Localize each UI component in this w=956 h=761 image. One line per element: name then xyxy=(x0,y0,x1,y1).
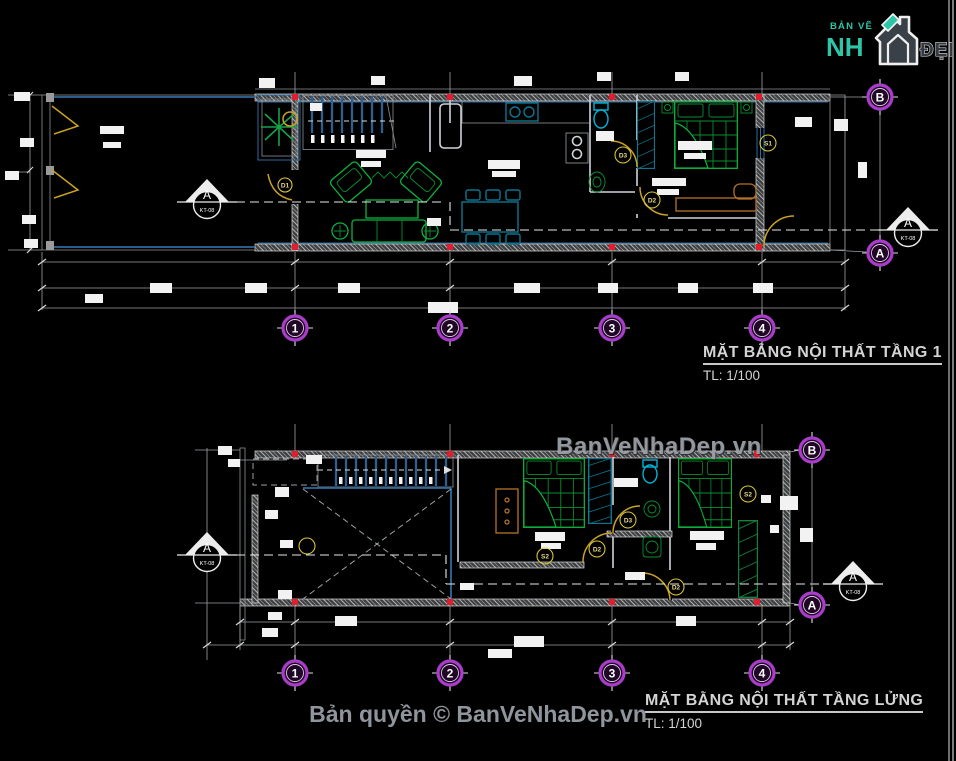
grid-bubble-2: 2 xyxy=(432,310,468,346)
washbasin xyxy=(644,501,660,517)
svg-text:S2: S2 xyxy=(541,554,549,561)
floor-plan-2: D3 D2 S2 D2 S2 1 2 3 4 B A A KT-08 xyxy=(177,424,883,691)
grid-bubble-4: 4 xyxy=(744,310,780,346)
svg-text:3: 3 xyxy=(609,321,616,335)
scrollbar[interactable] xyxy=(948,0,950,761)
plan2-bedroom-2 xyxy=(679,459,758,598)
bed xyxy=(679,459,732,528)
svg-text:B: B xyxy=(808,443,817,457)
svg-text:A: A xyxy=(203,541,211,555)
plan2-void xyxy=(303,488,451,599)
svg-text:3: 3 xyxy=(609,666,616,680)
plan1-doors xyxy=(268,141,794,246)
rear-door-arc xyxy=(764,216,794,246)
svg-text:D3: D3 xyxy=(624,518,633,525)
grid-bubble-2: 2 xyxy=(432,655,468,691)
stove xyxy=(566,133,588,163)
plan1-title: MẶT BẰNG NỘI THẤT TẦNG 1 xyxy=(703,344,942,365)
plan2-section-marker-right: A KT-08 xyxy=(823,561,883,601)
grid-bubble-3: 3 xyxy=(594,655,630,691)
toilet xyxy=(594,103,608,128)
grid-bubble-1: 1 xyxy=(277,655,313,691)
svg-text:KT-08: KT-08 xyxy=(901,236,916,242)
plan2-section-line xyxy=(236,555,823,584)
plant-icon xyxy=(261,108,297,146)
plan1-gates xyxy=(52,106,78,198)
plan2-grid-bubbles: 1 2 3 4 B A xyxy=(277,432,830,691)
plan1-title-block: MẶT BẰNG NỘI THẤT TẦNG 1 TL: 1/100 xyxy=(703,344,942,383)
svg-text:D2: D2 xyxy=(593,547,602,554)
grid-bubble-B: B xyxy=(862,79,898,115)
svg-text:KT-08: KT-08 xyxy=(200,208,215,214)
floor-plan-1: D1 D3 D2 S1 1 2 3 4 B A A KT-08 xyxy=(5,72,938,346)
wardrobe xyxy=(738,520,758,598)
svg-text:4: 4 xyxy=(759,666,766,680)
plan1-living-room-furniture xyxy=(329,160,443,242)
svg-text:D1: D1 xyxy=(281,183,290,190)
plan1-section-marker-right: A KT-08 xyxy=(878,207,938,247)
grid-bubble-A: A xyxy=(794,587,830,623)
svg-text:4: 4 xyxy=(759,321,766,335)
grid-bubble-B: B xyxy=(794,432,830,468)
logo-brand-left: NH xyxy=(826,32,864,62)
svg-text:S2: S2 xyxy=(744,492,752,499)
svg-text:S1: S1 xyxy=(764,141,772,148)
chair xyxy=(734,184,756,199)
grid-bubble-A: A xyxy=(862,235,898,271)
plan1-section-marker-left: A KT-08 xyxy=(177,179,237,219)
svg-text:D2: D2 xyxy=(648,198,657,205)
house-icon xyxy=(876,14,917,64)
washing-machine xyxy=(643,537,661,557)
grid-bubble-3: 3 xyxy=(594,310,630,346)
desk xyxy=(496,489,518,533)
toilet xyxy=(643,460,657,483)
plan1-dining-set xyxy=(462,190,520,244)
desk xyxy=(676,198,756,211)
svg-text:A: A xyxy=(808,598,817,612)
svg-text:KT-08: KT-08 xyxy=(846,590,861,596)
washbasin xyxy=(589,172,605,192)
svg-text:A: A xyxy=(849,570,857,584)
grid-bubble-1: 1 xyxy=(277,310,313,346)
svg-text:D3: D3 xyxy=(619,153,628,160)
plan1-kitchen xyxy=(440,101,590,163)
bed xyxy=(524,459,585,528)
plan2-section-marker-left: A KT-08 xyxy=(177,532,237,572)
wardrobe xyxy=(637,101,655,169)
grid-bubble-4: 4 xyxy=(744,655,780,691)
svg-text:A: A xyxy=(203,188,211,202)
plan1-section-line xyxy=(236,202,878,230)
plan2-dimension-text-blocks xyxy=(218,446,813,658)
kitchen-sink xyxy=(506,103,538,121)
door-arc xyxy=(643,573,670,600)
plan2-bedroom-1 xyxy=(496,458,612,533)
wardrobe xyxy=(588,458,612,524)
svg-text:D2: D2 xyxy=(672,585,681,592)
svg-text:B: B xyxy=(876,90,885,104)
copyright-text: Bản quyền © BanVeNhaDep.vn xyxy=(0,701,956,728)
svg-text:2: 2 xyxy=(447,666,454,680)
svg-text:1: 1 xyxy=(292,321,299,335)
plan1-scale: TL: 1/100 xyxy=(703,368,942,383)
logo-tagline: BẢN VẼ xyxy=(830,20,873,32)
svg-text:KT-08: KT-08 xyxy=(200,561,215,567)
logo-brand-right: ĐẸP xyxy=(920,40,952,61)
svg-text:1: 1 xyxy=(292,666,299,680)
plan1-bathroom xyxy=(589,103,608,192)
watermark-text: BanVeNhaDep.vn xyxy=(556,433,762,461)
plan2-bathroom xyxy=(643,460,661,557)
svg-text:A: A xyxy=(904,216,912,230)
svg-text:2: 2 xyxy=(447,321,454,335)
site-logo: BẢN VẼ NH ĐẸP xyxy=(824,12,952,77)
svg-text:A: A xyxy=(876,246,885,260)
window-edge xyxy=(952,0,954,761)
